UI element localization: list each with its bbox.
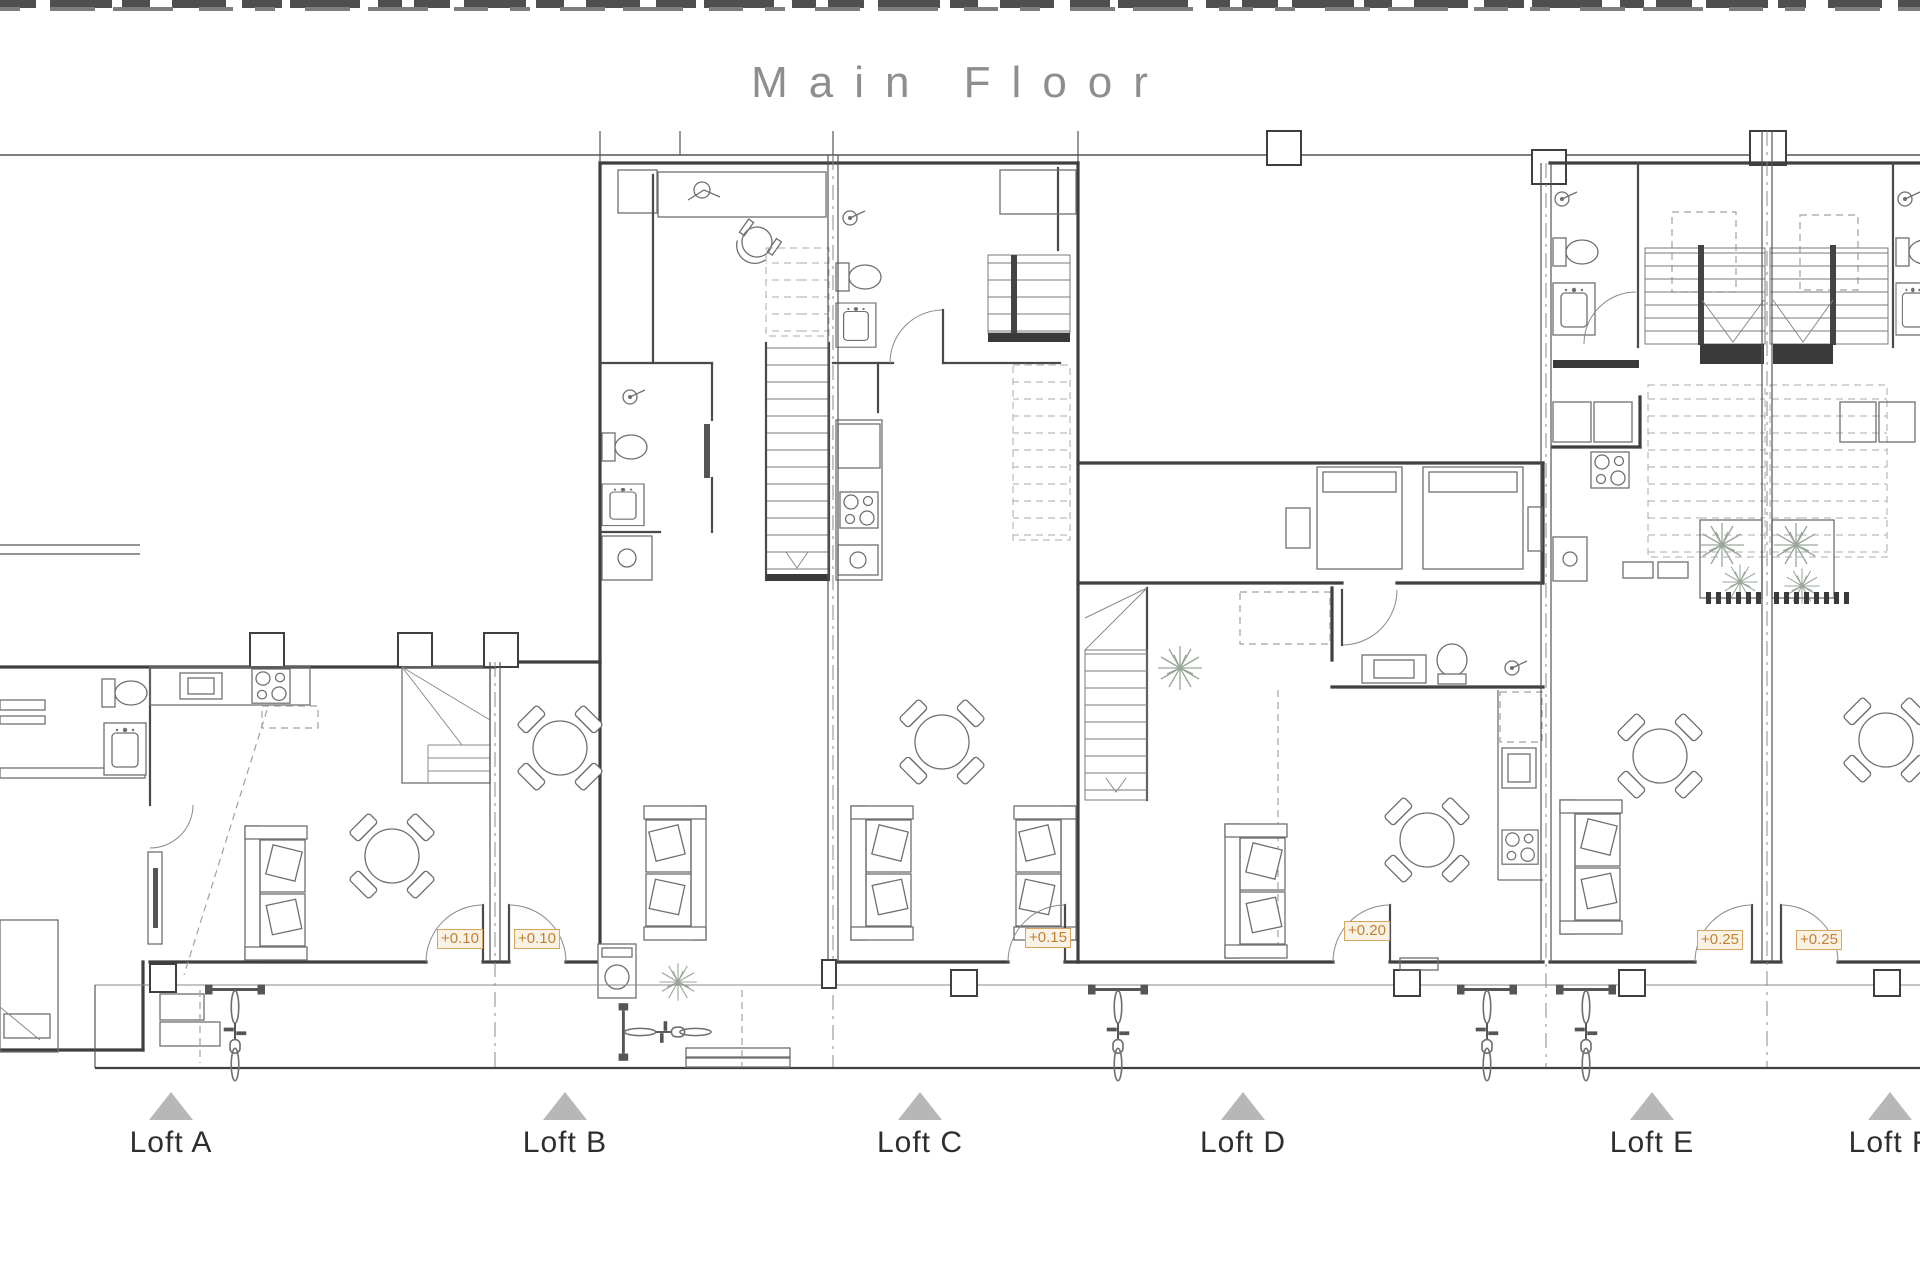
page-title: Main Floor xyxy=(751,58,1169,108)
loft-b-stairs xyxy=(766,248,829,581)
loft-d-kitchen xyxy=(1498,690,1543,880)
entry-step xyxy=(160,994,204,1020)
porch-column xyxy=(1619,970,1645,996)
loft-d-bedroom xyxy=(1286,467,1542,645)
loft-c-kitchen xyxy=(836,420,882,580)
entry-threshold xyxy=(1400,958,1438,970)
party-wall-d-e xyxy=(1541,163,1551,1068)
column xyxy=(1750,131,1786,165)
loft-b-bathroom xyxy=(600,363,712,580)
closet xyxy=(618,170,657,213)
loft-e-marker-triangle xyxy=(1630,1092,1674,1120)
column xyxy=(250,633,284,667)
entry-step xyxy=(686,1058,790,1067)
loft-d-label: Loft D xyxy=(1163,1126,1323,1160)
loft-b-marker-triangle xyxy=(543,1092,587,1120)
column xyxy=(1532,150,1566,184)
door-post xyxy=(822,960,836,988)
loft-c-plan xyxy=(833,163,1078,962)
door-swing-arc xyxy=(1342,590,1397,645)
loft-f-marker-triangle xyxy=(1868,1092,1912,1120)
bed xyxy=(1423,467,1523,569)
paver-strip xyxy=(1706,592,1849,604)
nightstand xyxy=(1286,508,1310,548)
nightstand xyxy=(1528,507,1542,551)
loft-a-marker-triangle xyxy=(149,1092,193,1120)
loft-e-label: Loft E xyxy=(1572,1126,1732,1160)
porch-column xyxy=(150,964,176,992)
entry-doors xyxy=(426,905,1838,962)
loft-a-bed xyxy=(0,920,58,1052)
elevation-marker-loft-f: +0.25 xyxy=(1796,930,1842,950)
loft-d-bathroom xyxy=(1362,644,1527,684)
column xyxy=(398,633,432,667)
loft-a-bathroom xyxy=(102,679,193,848)
loft-e-stairs xyxy=(1645,245,1765,557)
loft-b-label: Loft B xyxy=(485,1126,645,1160)
elevation-marker-loft-e: +0.25 xyxy=(1697,930,1743,950)
door-leaf xyxy=(704,424,710,478)
site-boundary-line xyxy=(0,131,1920,184)
door-swing-arc xyxy=(890,310,943,363)
loft-b-laundry xyxy=(598,944,636,998)
porch-column xyxy=(951,970,977,996)
elevation-marker-loft-d: +0.20 xyxy=(1344,921,1390,941)
elevation-marker-loft-a: +0.10 xyxy=(437,929,483,949)
tv xyxy=(153,868,158,928)
column xyxy=(1267,131,1301,165)
loft-f-stairs xyxy=(1770,245,1888,557)
loft-a-stairs xyxy=(402,667,490,783)
closet xyxy=(1000,170,1076,214)
kitchen-cabinet xyxy=(602,536,652,580)
floor-plan-drawing xyxy=(0,0,1920,1280)
entry-step xyxy=(160,1022,220,1046)
loft-c-label: Loft C xyxy=(840,1126,1000,1160)
elevation-marker-loft-b: +0.10 xyxy=(514,929,560,949)
entry-step xyxy=(686,1048,790,1057)
loft-c-stairs xyxy=(988,255,1070,540)
loft-f-label: Loft F xyxy=(1810,1126,1920,1160)
loft-a-label: Loft A xyxy=(91,1126,251,1160)
column xyxy=(484,633,518,667)
loft-c-marker-triangle xyxy=(898,1092,942,1120)
party-wall-b-c xyxy=(828,155,838,1068)
bed xyxy=(1317,467,1402,569)
door-swing-arc xyxy=(150,805,193,848)
top-edge-artifact xyxy=(0,4,1920,9)
loft-d-plan xyxy=(1078,463,1543,962)
loft-e-bathroom xyxy=(1553,163,1639,368)
overhead-cabinets xyxy=(1240,592,1330,644)
porch-column xyxy=(1394,970,1420,996)
elevation-marker-loft-c: +0.15 xyxy=(1025,928,1071,948)
party-wall-a-b xyxy=(490,662,500,1068)
loft-e-plan xyxy=(1550,163,1920,962)
loft-d-marker-triangle xyxy=(1221,1092,1265,1120)
desk-lamp xyxy=(688,190,720,200)
loft-d-stairs xyxy=(1085,588,1147,800)
porch-column xyxy=(1874,970,1900,996)
entry-porch-band xyxy=(95,958,1920,1081)
